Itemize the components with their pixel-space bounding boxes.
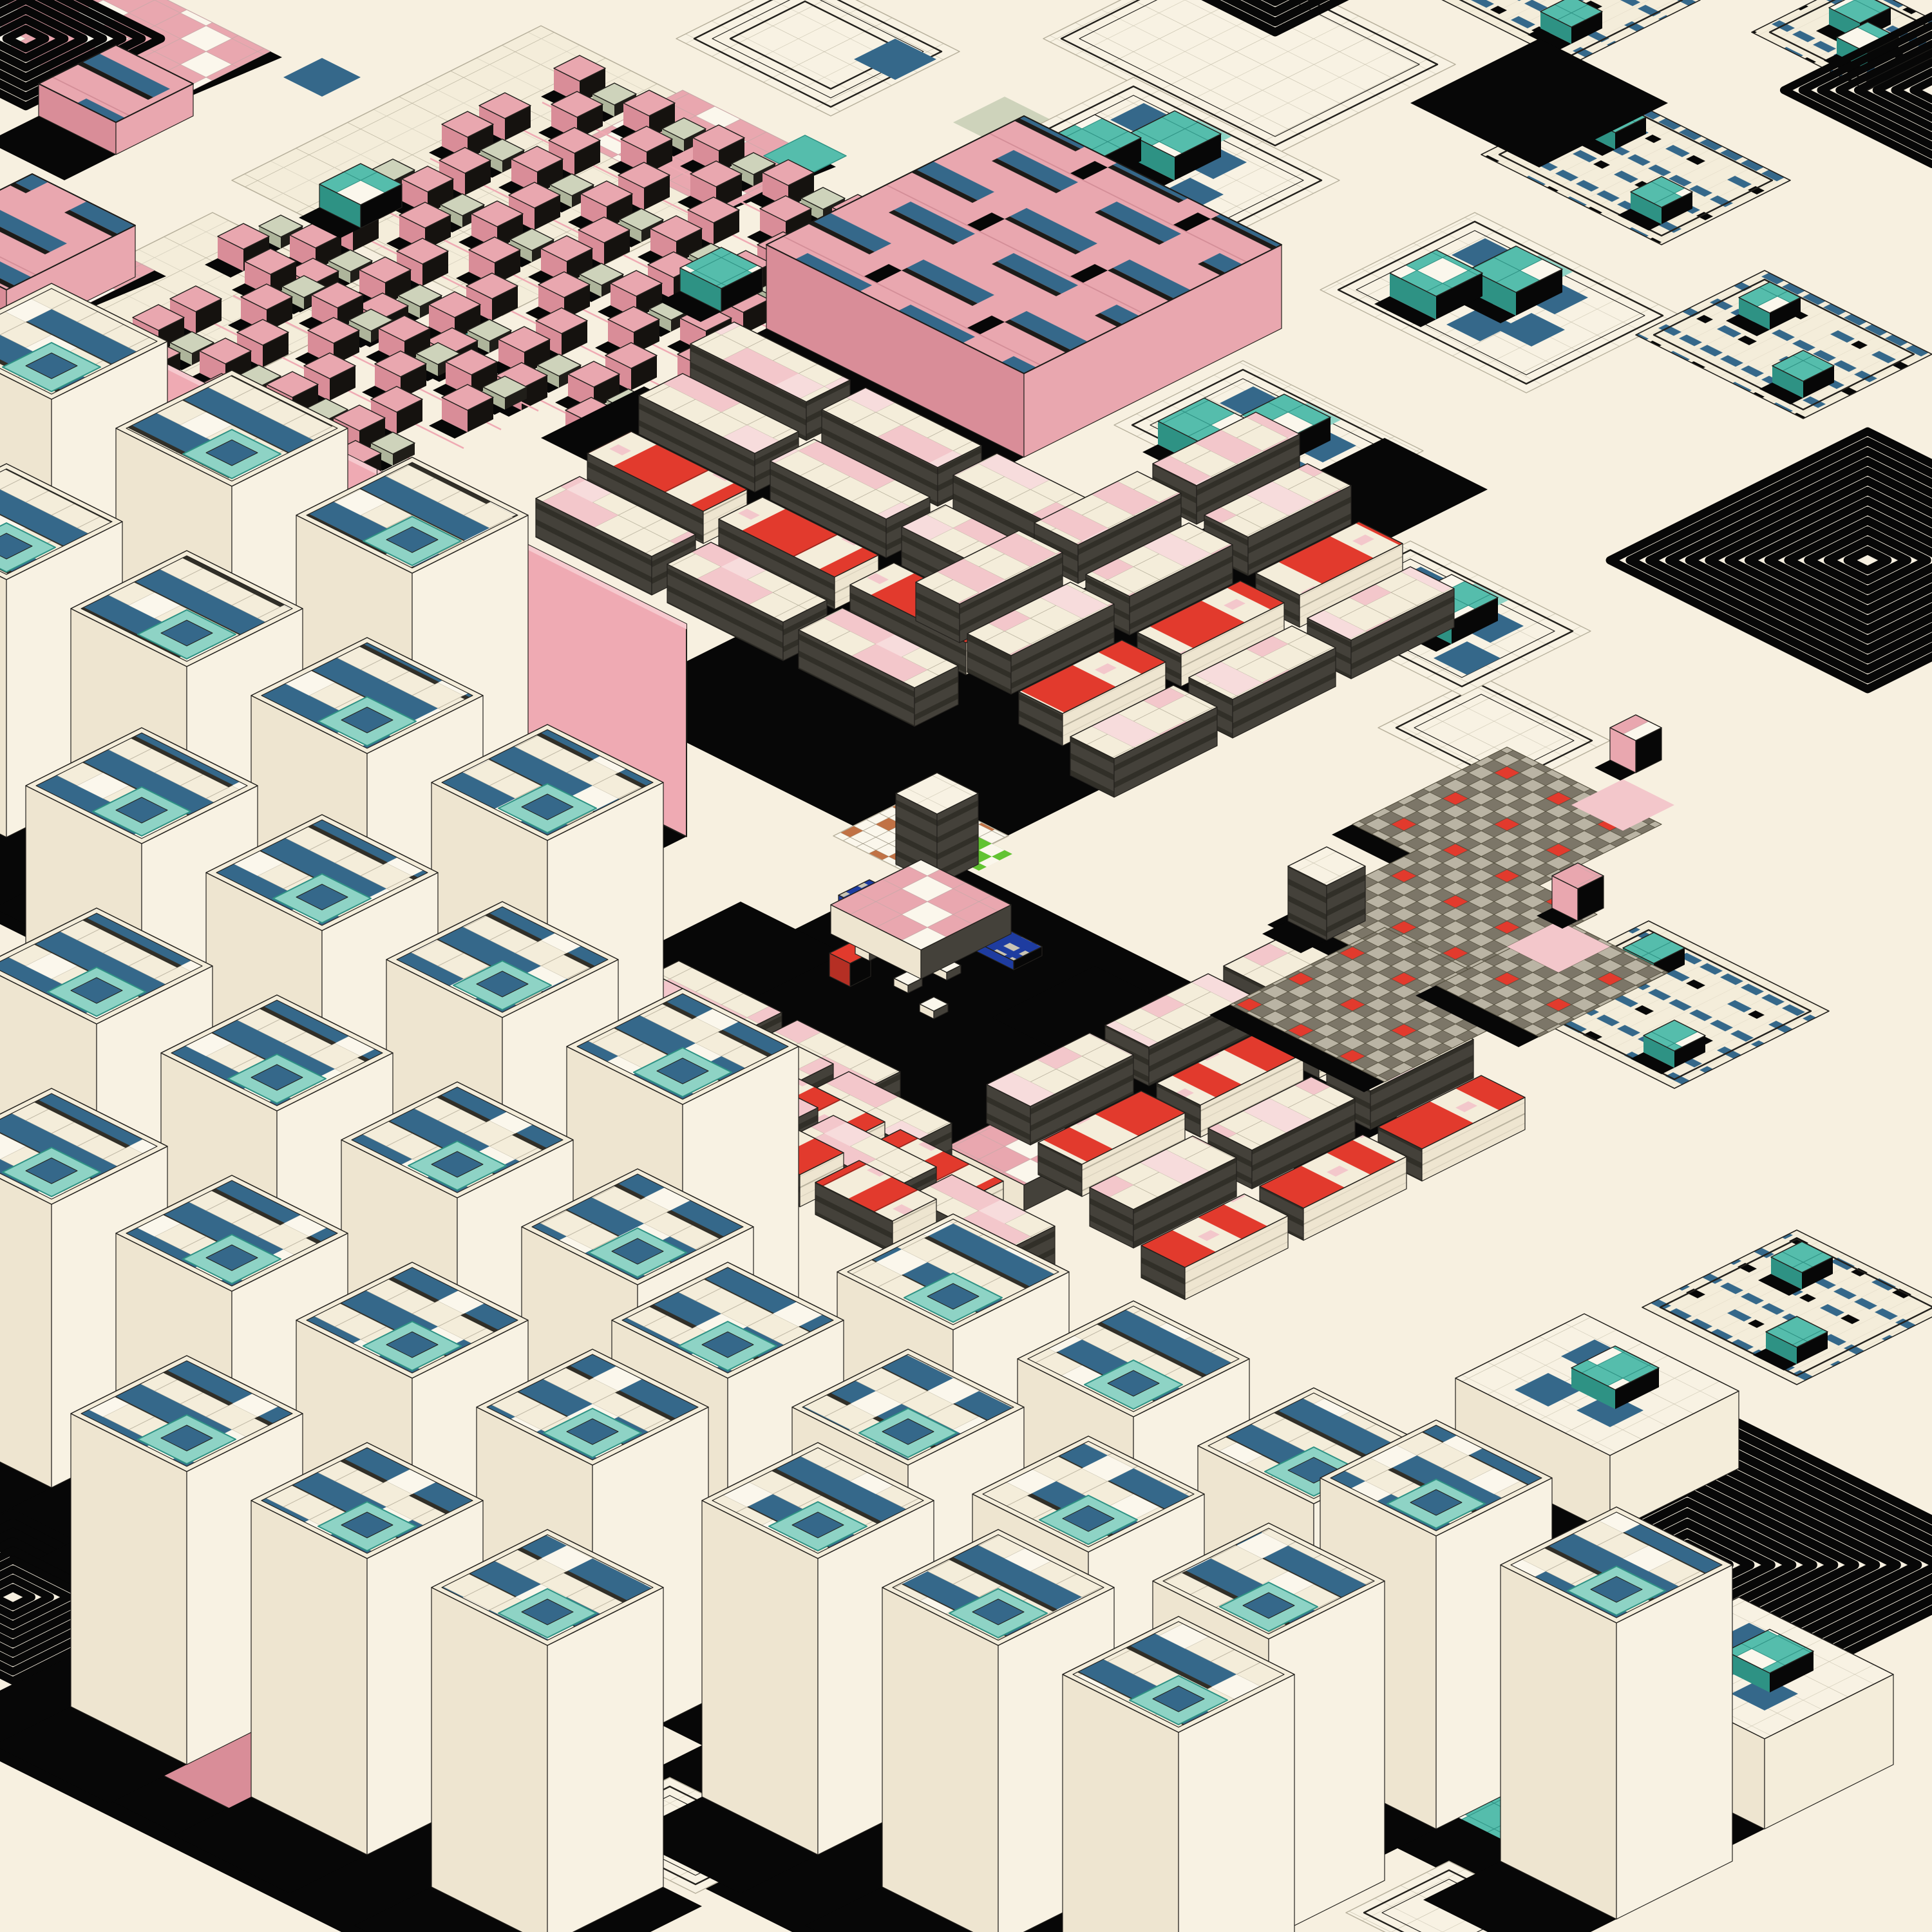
isometric-city-artwork (0, 0, 1932, 1932)
artwork-canvas (0, 0, 1932, 1932)
